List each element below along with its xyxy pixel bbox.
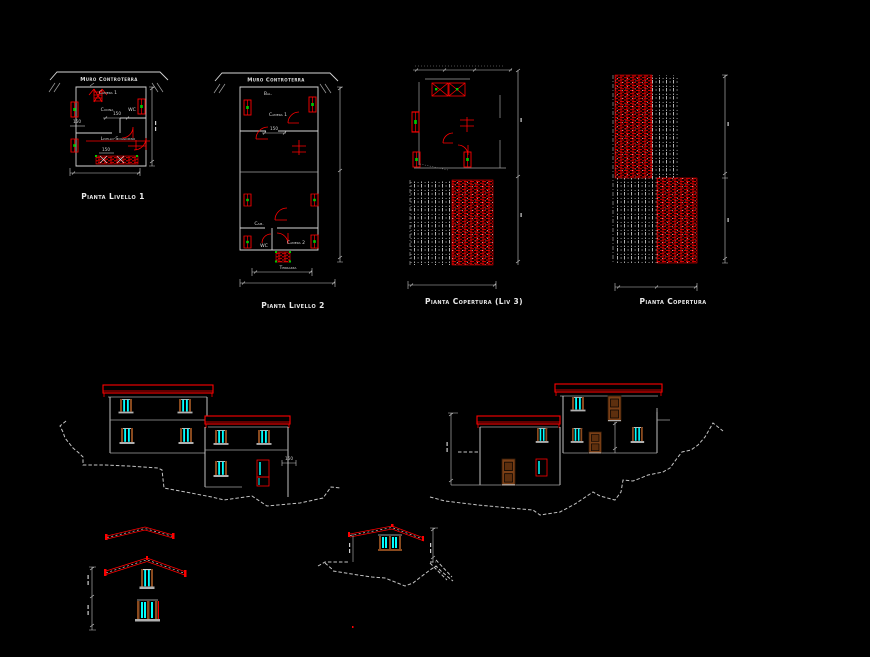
plan1-room-wc: WC (128, 107, 136, 113)
roof4-hatch-blocks (613, 75, 697, 263)
elev-right-roof-slab-upper (555, 384, 662, 396)
elevation-gable-left (88, 527, 187, 630)
plan2-dimensions: 150 (240, 87, 343, 287)
plan1-terrace-hatch (95, 155, 138, 164)
gable-right-terrain (318, 560, 453, 628)
plan1-room-soggiorno: Livello-Soggiorno (101, 136, 136, 142)
roof3-hatch-panel (410, 180, 493, 265)
plan2-room-camera2: Camera 2 (287, 240, 305, 246)
elevation-gable-right (318, 524, 453, 628)
plan2-walls (240, 87, 318, 250)
plan1-caption: Pianta Livello 1 (81, 192, 145, 201)
elev-right-dim-mid (613, 422, 617, 453)
plan2-room-terrazza: Terrazza (279, 265, 298, 271)
svg-text:150: 150 (73, 119, 81, 124)
elev-right-dim-left (447, 413, 459, 485)
gable-left-roof-upper (105, 527, 175, 540)
svg-text:150: 150 (285, 456, 293, 461)
floor-plan-level-1: Muro Controterra Camera 1 Cucina WC Live… (49, 72, 168, 201)
plan1-walls (76, 87, 146, 166)
elev-left-red-window (257, 460, 269, 486)
cad-canvas: Muro Controterra Camera 1 Cucina WC Live… (0, 0, 870, 657)
gable-right-window (378, 535, 402, 551)
roof3-caption: Pianta Copertura (Liv 3) (425, 297, 523, 306)
elev-left-walls-lower (205, 427, 288, 497)
plan2-room-wc: WC (260, 243, 268, 249)
plan2-room-balcone: Bal. (264, 91, 272, 97)
svg-text:150: 150 (113, 111, 121, 116)
roof4-caption: Pianta Copertura (640, 297, 707, 306)
plan2-caption: Pianta Livello 2 (261, 301, 325, 310)
elev-left-terrain (60, 421, 341, 506)
gable-left-window-wide (135, 600, 160, 622)
plan2-room-camera1: Camera 1 (269, 112, 287, 118)
floor-plan-level-2: Muro Controterra Bal. Camera (214, 73, 343, 310)
elev-left-roof-slab-lower (205, 416, 290, 428)
elevation-east (430, 384, 723, 515)
plan2-room-cam: Cam. (254, 221, 263, 227)
plan2-terrace-hatch (275, 251, 291, 263)
plan2-wall-label: Muro Controterra (247, 78, 305, 84)
elevation-west: 150 (60, 385, 341, 506)
plan1-wall-label: Muro Controterra (80, 77, 138, 83)
cad-drawing-sheet: Muro Controterra Camera 1 Cucina WC Live… (0, 0, 870, 657)
elev-left-roof-slab-upper (103, 385, 213, 397)
roof3-dimension-bottom (408, 281, 496, 289)
roof-plan-small: Pianta Copertura (Liv 3) (408, 66, 523, 306)
svg-text:150: 150 (270, 126, 278, 131)
gable-left-dimension (88, 567, 97, 630)
elev-left-dim-note: 150 (282, 456, 296, 466)
elev-right-roof-slab-lower (477, 416, 560, 428)
svg-text:150: 150 (102, 147, 110, 152)
roof3-upper-plan-fixtures (412, 83, 474, 170)
elev-right-red-window (536, 459, 547, 476)
roof-plan-large: Pianta Copertura (613, 75, 729, 306)
elev-right-terrain (430, 423, 723, 515)
plan1-room-camera: Camera 1 (99, 90, 117, 96)
